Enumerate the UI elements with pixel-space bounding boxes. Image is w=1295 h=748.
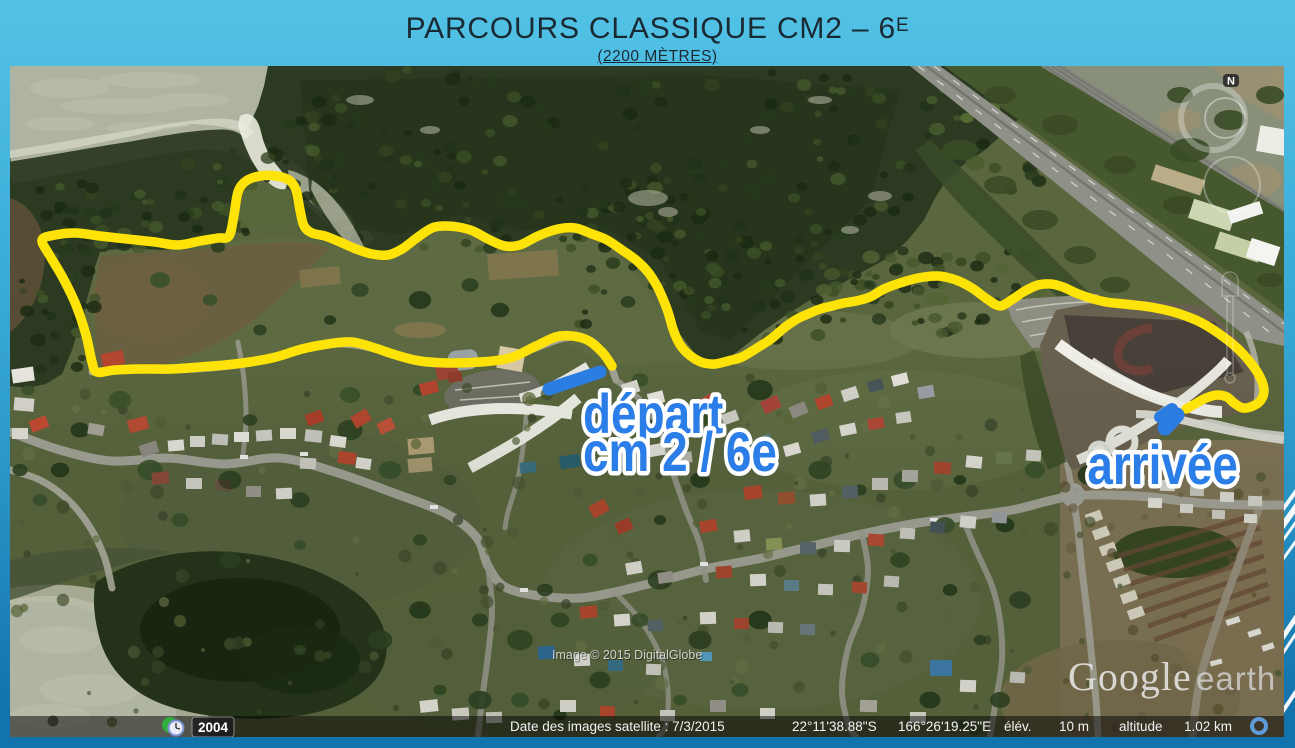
- svg-text:1.02 km: 1.02 km: [1184, 719, 1232, 734]
- svg-text:earth: earth: [1196, 660, 1276, 697]
- svg-text:Date des images satellite : 7/: Date des images satellite : 7/3/2015: [510, 719, 725, 734]
- svg-text:Image © 2015 DigitalGlobe: Image © 2015 DigitalGlobe: [552, 648, 702, 662]
- svg-text:Google: Google: [1068, 654, 1192, 699]
- svg-text:166°26'19.25"E: 166°26'19.25"E: [898, 719, 991, 734]
- svg-text:10 m: 10 m: [1059, 719, 1089, 734]
- svg-text:cm 2 / 6e: cm 2 / 6e: [583, 421, 777, 483]
- svg-text:22°11'38.88"S: 22°11'38.88"S: [792, 719, 877, 734]
- svg-text:arrivée: arrivée: [1087, 434, 1238, 496]
- svg-text:N: N: [1227, 76, 1235, 88]
- svg-text:altitude: altitude: [1119, 719, 1163, 734]
- svg-text:élév.: élév.: [1004, 719, 1032, 734]
- svg-text:2004: 2004: [198, 720, 229, 735]
